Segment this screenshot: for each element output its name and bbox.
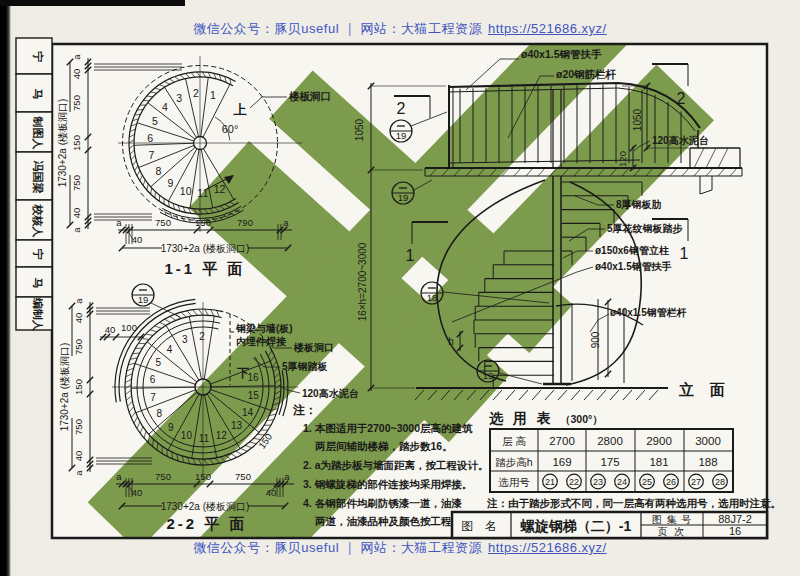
watermark-bottom-url: https://521686.xyz/ <box>488 540 607 555</box>
plan2-step-number: 2 <box>199 331 205 342</box>
dim-label: a <box>73 470 84 476</box>
dim-label: 40 <box>73 313 84 324</box>
elev-dim-900: 900 <box>590 331 601 348</box>
plan2-step-number: 4 <box>167 344 173 355</box>
plan1-step-number: 2 <box>193 87 199 99</box>
selection-number: 22 <box>569 477 579 487</box>
elev-label-curb: 120高水泥台 <box>652 135 709 146</box>
selection-number: 28 <box>715 477 725 487</box>
selection-number: 26 <box>666 477 676 487</box>
plan1-up-label: 上 <box>234 102 247 117</box>
plan1-dim-total-bottom: 1730+2a (楼板洞口) <box>161 243 250 254</box>
plan2-step-number: 13 <box>231 420 243 431</box>
plan1-step-number: 8 <box>155 165 161 177</box>
plan2-dim-total-left: 1730+2a (楼板洞口) <box>59 343 70 432</box>
note-line: 4. 各钢部件均刷防锈漆一道，油漆 <box>303 497 462 509</box>
dim-label: a <box>116 217 122 228</box>
selection-number: 23 <box>593 477 603 487</box>
dim-label: 750 <box>155 471 171 482</box>
credit-cell: 冯国梁 <box>32 161 44 194</box>
plan2-step-number: 14 <box>242 407 254 418</box>
credit-cell: 校核人 <box>31 204 44 239</box>
credit-cell: 宁 <box>32 248 44 260</box>
elev-dim-120: 120 <box>617 151 628 167</box>
dim-label: 750 <box>155 217 171 228</box>
elev-label-baluster: ø20钢筋栏杆 <box>556 68 617 80</box>
dim-label: 150 <box>71 135 82 151</box>
dim-label: a <box>73 298 84 304</box>
title-block: 图 名 螺旋钢梯（二）-1 图 集 号 88J7-2 页 次 16 <box>452 512 767 538</box>
table-cell-steph: 175 <box>600 456 619 468</box>
plan2-beam-label: 钢梁与墙(板) <box>235 323 293 334</box>
dim-label: a <box>116 471 122 482</box>
dim-label: a <box>283 217 289 228</box>
dim-label: 40 <box>71 69 82 80</box>
detail-callout: 19 <box>396 130 407 141</box>
dim-label: 40 <box>71 208 82 219</box>
plan2-step-number: 5 <box>156 357 162 368</box>
plan2-step-number: 16 <box>248 372 260 383</box>
plan1-step-number: 9 <box>167 177 173 189</box>
detail-callout: 18 <box>427 292 438 303</box>
plan1-step-number: 5 <box>152 115 158 127</box>
watermark-bottom-text: 微信公众号：豚贝useful ｜ 网站：大猫工程资源 <box>193 540 482 555</box>
note-line: 2. a为踏步板与墙面距离，按工程设计。 <box>303 459 489 471</box>
plan2-step-number: 10 <box>181 430 193 441</box>
plan2-dim-40: 40 <box>105 324 116 335</box>
table-cell-steph: 169 <box>552 456 571 468</box>
note-line: 3. 钢螺旋梯的部件连接均采用焊接。 <box>303 478 472 490</box>
elev-label-tread: 5厚花纹钢板踏步 <box>607 223 683 235</box>
credit-cell: 马 <box>32 89 44 100</box>
credit-cell: 制图人 <box>31 116 44 151</box>
elev-label-rail: ø40x1.5钢管栏杆 <box>610 307 687 318</box>
plan2-step-number: 6 <box>150 374 156 385</box>
notes-block: 注： 1. 本图适用于2700~3000层高的建筑 两层间辅助楼梯，踏步数16。… <box>292 403 489 527</box>
dim-label: 750 <box>235 471 251 482</box>
plan2-beam-label-2: 内埋件焊接 <box>236 336 287 347</box>
plan1-step-number: 4 <box>162 101 168 113</box>
titleblock-page-label: 页 次 <box>658 526 687 537</box>
elev-dim-1050-right: 1050 <box>632 108 643 131</box>
drawing-sheet: 宁马制图人冯国梁校核人宁马编制人 上 60° 楼板洞口 1-1 平 面 1730… <box>0 0 800 576</box>
dim-label: a <box>71 54 82 60</box>
table-row-label: 层 高 <box>502 435 526 447</box>
plan1-step-number: 3 <box>176 92 182 104</box>
selection-number: 21 <box>545 477 555 487</box>
plan2-opening-label: 楼板洞口 <box>293 342 334 353</box>
plan2-tread-label: 5厚钢踏板 <box>282 361 328 372</box>
plan2-dim-total-bottom: 1730+2a (楼板洞口) <box>161 501 250 512</box>
plan1-opening-label: 楼板洞口 <box>288 90 331 102</box>
plan1-step-number: 10 <box>180 185 192 197</box>
selection-number: 24 <box>617 477 627 487</box>
plan2-step-number: 9 <box>168 422 174 433</box>
dim-label: 150 <box>195 471 211 482</box>
plan2-step-number: 11 <box>199 433 210 444</box>
elev-label-handrail: ø40x1.5钢管扶手 <box>595 261 672 272</box>
plan2-step-number: 7 <box>150 392 156 403</box>
table-cell-height: 3000 <box>695 435 721 447</box>
credit-cell: 马 <box>32 278 44 289</box>
table-cell-height: 2700 <box>549 435 575 447</box>
elev-section-1-left: 1 <box>406 247 415 264</box>
titleblock-atlas-no: 88J7-2 <box>718 513 752 525</box>
table-cell-height: 2800 <box>597 435 623 447</box>
table-note: 注：由于踏步形式不同，同一层高有两种选用号，选用时注意。 <box>486 497 781 509</box>
elev-section-2-left: 2 <box>397 100 406 117</box>
table-row-label: 选用号 <box>498 476 530 488</box>
dim-label: a <box>71 227 82 233</box>
plan2-step-number: 12 <box>216 430 228 441</box>
note-line: 1. 本图适用于2700~3000层高的建筑 <box>303 422 473 434</box>
plan1-step-number: 7 <box>149 149 155 161</box>
credit-cell: 宁 <box>32 51 44 63</box>
notes-heading: 注： <box>292 403 317 417</box>
dim-label: a <box>284 471 290 482</box>
elev-dim-total: 16×h=2700~3000 <box>357 242 368 321</box>
dim-label: 790 <box>237 217 253 228</box>
titleblock-atlas-label: 图 集 号 <box>652 514 693 525</box>
elev-section-1-right: 1 <box>680 245 689 262</box>
elev-label-handrail-top: ø40x1.5钢管扶手 <box>521 48 602 60</box>
plan1-dim-total-left: 1730+2a (楼板洞口) <box>57 99 68 188</box>
detail-callout: 19 <box>483 370 494 381</box>
elev-label-column: ø150x6钢管立柱 <box>595 245 669 256</box>
watermark-bottom: 微信公众号：豚贝useful ｜ 网站：大猫工程资源https://521686… <box>0 539 800 557</box>
titleblock-name-label: 图 名 <box>461 519 500 533</box>
dim-label: 750 <box>71 95 82 111</box>
dim-label: 40 <box>73 451 84 462</box>
table-title: 选 用 表 <box>489 410 554 426</box>
table-subtitle: （300°） <box>560 413 603 426</box>
titleblock-page-no: 16 <box>729 525 741 537</box>
table-cell-height: 2900 <box>646 435 672 447</box>
dim-label: 40 <box>132 234 143 245</box>
dim-label: 750 <box>71 175 82 191</box>
plan2-step-number: 15 <box>248 390 260 401</box>
dim-label: 750 <box>73 339 84 355</box>
elev-label-rib: 8厚钢板肋 <box>616 199 662 210</box>
plan2-step-number: 3 <box>182 334 188 345</box>
credit-cell: 编制人 <box>31 297 44 332</box>
plan2-step-number: 8 <box>157 408 163 419</box>
plan2-curb-label: 120高水泥台 <box>302 388 359 399</box>
plan1-step-number: 6 <box>147 132 153 144</box>
elevation-title: 立 面 <box>678 381 731 398</box>
detail-callout: 19 <box>398 192 409 203</box>
dim-label: 150 <box>195 217 211 228</box>
selection-number: 25 <box>642 477 652 487</box>
plan1-step-number: 1 <box>210 89 216 101</box>
titleblock-drawing-name: 螺旋钢梯（二）-1 <box>520 518 632 534</box>
note-line: 两层间辅助楼梯，踏步数16。 <box>315 440 453 452</box>
elev-dim-1050-left: 1050 <box>354 118 365 141</box>
plan1-title: 1-1 平 面 <box>164 260 245 277</box>
table-row-label: 踏步高h <box>495 456 533 468</box>
dim-label: 150 <box>73 379 84 395</box>
table-cell-steph: 188 <box>698 456 717 468</box>
detail-callout: 19 <box>138 294 149 305</box>
plan2-title: 2-2 平 面 <box>166 515 247 532</box>
table-cell-steph: 181 <box>649 456 668 468</box>
selection-number: 27 <box>691 477 701 487</box>
credits-strip: 宁马制图人冯国梁校核人宁马编制人 <box>16 38 52 332</box>
dim-label: 40 <box>132 487 143 498</box>
dim-label: 750 <box>73 419 84 435</box>
